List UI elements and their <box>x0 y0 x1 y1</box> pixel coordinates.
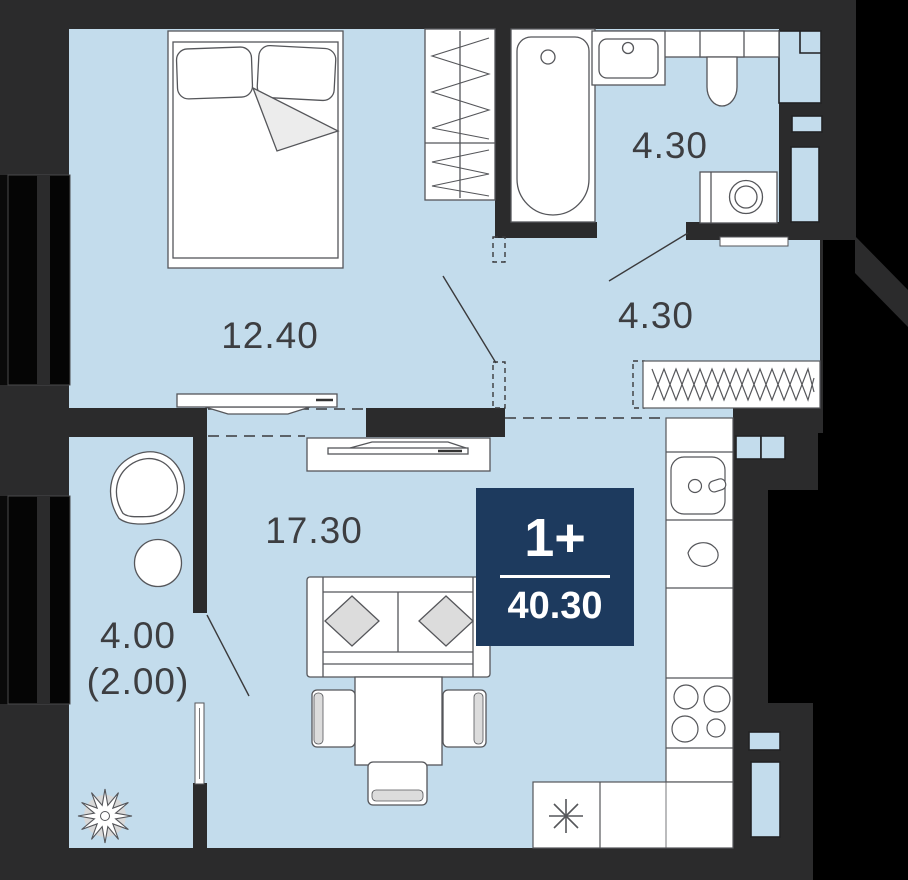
chair-back <box>314 693 323 744</box>
kitchen-tap <box>689 480 702 493</box>
badge-divider <box>500 575 610 578</box>
floor-plan: 12.40 4.30 4.30 17.30 4.00 (2.00) 1+ 40.… <box>0 0 908 880</box>
shaft-icon <box>751 762 780 837</box>
bathtub-drain <box>541 50 555 64</box>
wall-bedroom-bottom-right <box>366 408 505 437</box>
tv-stand-bedroom-icon <box>177 394 337 407</box>
window-outer-edge <box>0 175 8 385</box>
fridge-snowflake-icon <box>549 799 583 833</box>
kitchen-bottom-counter <box>533 782 733 848</box>
shaft-icon <box>736 436 761 459</box>
badge-rooms-count: 1+ <box>524 511 586 565</box>
wall-balcony-divider-top <box>193 435 207 613</box>
toilet-bowl <box>707 57 737 106</box>
shaft-icon <box>749 732 780 750</box>
wall-balcony-divider-bottom <box>193 783 207 848</box>
shaft-icon <box>792 116 822 132</box>
chair-back <box>474 693 483 744</box>
window-mullion <box>37 175 50 385</box>
badge-total-area: 40.30 <box>507 587 602 625</box>
toilet-icon <box>700 31 744 57</box>
wall-bath-bottom-left <box>495 222 597 238</box>
washbasin-tap <box>623 43 634 54</box>
dining-table-icon <box>355 677 442 765</box>
wall-bedroom-bottom-left <box>0 408 207 437</box>
apartment-type-badge: 1+ 40.30 <box>476 488 634 646</box>
bathtub-basin <box>517 37 589 215</box>
chair-back <box>372 790 423 801</box>
entrance-threshold <box>720 237 788 246</box>
washing-machine-drum-inner <box>735 186 757 208</box>
shaft-icon <box>761 436 785 459</box>
floor-plan-drawing <box>0 0 908 880</box>
pillow-icon <box>257 45 337 101</box>
shaft-icon <box>791 147 819 222</box>
hall-closet <box>643 361 820 408</box>
pillow-icon <box>176 47 253 100</box>
window-outer-edge <box>0 496 8 704</box>
balcony-table-icon <box>135 540 182 587</box>
wall-bedroom-bath <box>495 29 511 222</box>
window-mullion <box>37 496 50 704</box>
